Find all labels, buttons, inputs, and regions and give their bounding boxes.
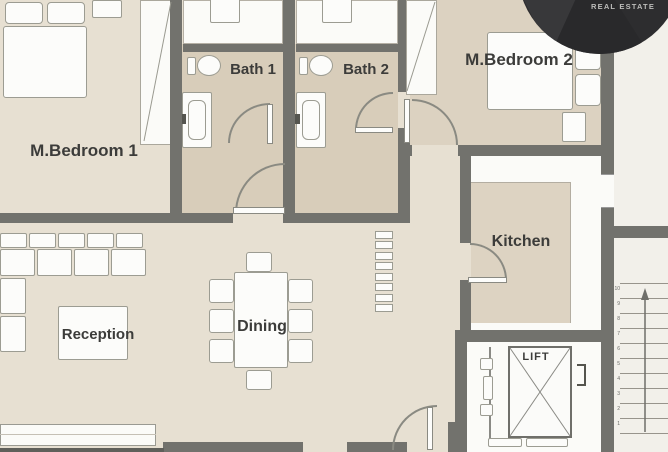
stair-step-number: 4 xyxy=(610,376,620,382)
stair-step-number: 6 xyxy=(610,346,620,352)
room-label-bedroom1: M.Bedroom 1 xyxy=(4,141,164,161)
room-label-dining: Dining xyxy=(224,317,300,336)
room-label-bath1: Bath 1 xyxy=(222,61,284,79)
dining-chair xyxy=(209,279,234,303)
wall xyxy=(398,145,412,156)
room-label-bath2: Bath 2 xyxy=(334,61,398,79)
room-label-kitchen: Kitchen xyxy=(471,232,571,251)
stair-step-number: 2 xyxy=(610,406,620,412)
stair-step-number: 7 xyxy=(610,331,620,337)
stair-tread xyxy=(620,433,668,434)
bath2-sink-basin xyxy=(302,100,320,140)
stair-step-number: 8 xyxy=(610,316,620,322)
hall-door-leaf xyxy=(233,207,285,214)
lift-machinery xyxy=(480,404,493,416)
sofa-seat-cushion xyxy=(0,249,35,276)
toilet-icon xyxy=(197,55,221,76)
bed2-pillow xyxy=(575,74,601,106)
sofa-back-cushion xyxy=(87,233,114,248)
hall-cabinet-cell xyxy=(375,304,393,312)
stair-step-number: 3 xyxy=(610,391,620,397)
wall xyxy=(163,442,303,452)
wall xyxy=(455,330,614,342)
stair-tread xyxy=(620,313,668,314)
room-label-reception: Reception xyxy=(46,326,150,344)
stair-step-number: 5 xyxy=(610,361,620,367)
stair-tread xyxy=(620,328,668,329)
bed1-pillow xyxy=(47,2,85,24)
entrance-door-leaf xyxy=(427,407,433,450)
dining-chair xyxy=(246,370,272,390)
bath2-door-leaf xyxy=(355,127,393,133)
bath1-door-leaf xyxy=(267,104,273,144)
sofa-back-cushion xyxy=(0,233,27,248)
stair-tread xyxy=(620,343,668,344)
room-label-lift: LIFT xyxy=(508,351,564,364)
bed1-mattress xyxy=(3,26,87,98)
lift-door-jamb-icon xyxy=(577,364,586,386)
hall-cabinet-cell xyxy=(375,252,393,260)
bath2-shower-tray xyxy=(322,0,352,23)
bed1-pillow xyxy=(5,2,43,24)
bath1-shower-tray xyxy=(210,0,240,23)
floor-plan: 12345678910 M.Bedroom 1 Bath 1 Bath 2 M.… xyxy=(0,0,668,452)
hall-cabinet-cell xyxy=(375,294,393,302)
wall xyxy=(0,448,164,452)
sofa-chaise xyxy=(0,278,26,314)
lift-machinery xyxy=(483,376,493,400)
wall xyxy=(0,213,233,223)
bath1-sink-basin xyxy=(188,100,206,140)
wall xyxy=(183,44,283,52)
wall xyxy=(398,0,406,92)
sofa-back-cushion xyxy=(116,233,143,248)
stair-tread xyxy=(620,358,668,359)
toilet-icon xyxy=(309,55,333,76)
hall-cabinet-cell xyxy=(375,262,393,270)
sofa-seat-cushion xyxy=(37,249,72,276)
bedroom2-wardrobe xyxy=(406,0,437,95)
wall xyxy=(460,156,471,243)
stair-tread xyxy=(620,283,668,284)
lift-sill xyxy=(488,438,522,447)
stair-step-number: 1 xyxy=(610,421,620,427)
sofa-chaise xyxy=(0,316,26,352)
toilet-icon xyxy=(299,57,308,75)
wall xyxy=(296,44,398,52)
stair-tread xyxy=(620,388,668,389)
stair-tread xyxy=(620,403,668,404)
dining-chair xyxy=(209,339,234,363)
bed2-nightstand xyxy=(562,112,586,142)
sofa-seat-cushion xyxy=(111,249,146,276)
stair-tread xyxy=(620,298,668,299)
wall xyxy=(170,0,182,213)
kitchen-door-leaf xyxy=(468,277,507,283)
wall xyxy=(458,145,614,156)
stair-tread xyxy=(620,373,668,374)
wall xyxy=(614,226,668,238)
sofa-seat-cushion xyxy=(74,249,109,276)
bed1-nightstand xyxy=(92,0,122,18)
hall-cabinet-cell xyxy=(375,283,393,291)
wall xyxy=(448,422,460,452)
sofa-back-cushion xyxy=(29,233,56,248)
kitchen-window xyxy=(601,174,614,208)
hall-cabinet-cell xyxy=(375,273,393,281)
hall-cabinet-cell xyxy=(375,231,393,239)
dining-chair xyxy=(288,339,313,363)
bedroom1-wardrobe xyxy=(140,0,172,145)
dining-chair xyxy=(246,252,272,272)
wall xyxy=(601,0,614,452)
dining-chair xyxy=(288,279,313,303)
hall-cabinet-cell xyxy=(375,241,393,249)
reception-window xyxy=(0,424,156,446)
bedroom2-door-leaf xyxy=(404,99,410,143)
brand-logo-text: REAL ESTATE xyxy=(591,2,655,11)
wall xyxy=(460,280,471,330)
reception-window-mullion xyxy=(0,434,156,435)
stair-step-number: 9 xyxy=(610,301,620,307)
stair-tread xyxy=(620,418,668,419)
wall xyxy=(285,213,398,223)
lift-machinery xyxy=(480,358,493,370)
lift-sill xyxy=(526,438,568,447)
sofa-back-cushion xyxy=(58,233,85,248)
toilet-icon xyxy=(187,57,196,75)
stair-step-number: 10 xyxy=(610,286,620,292)
